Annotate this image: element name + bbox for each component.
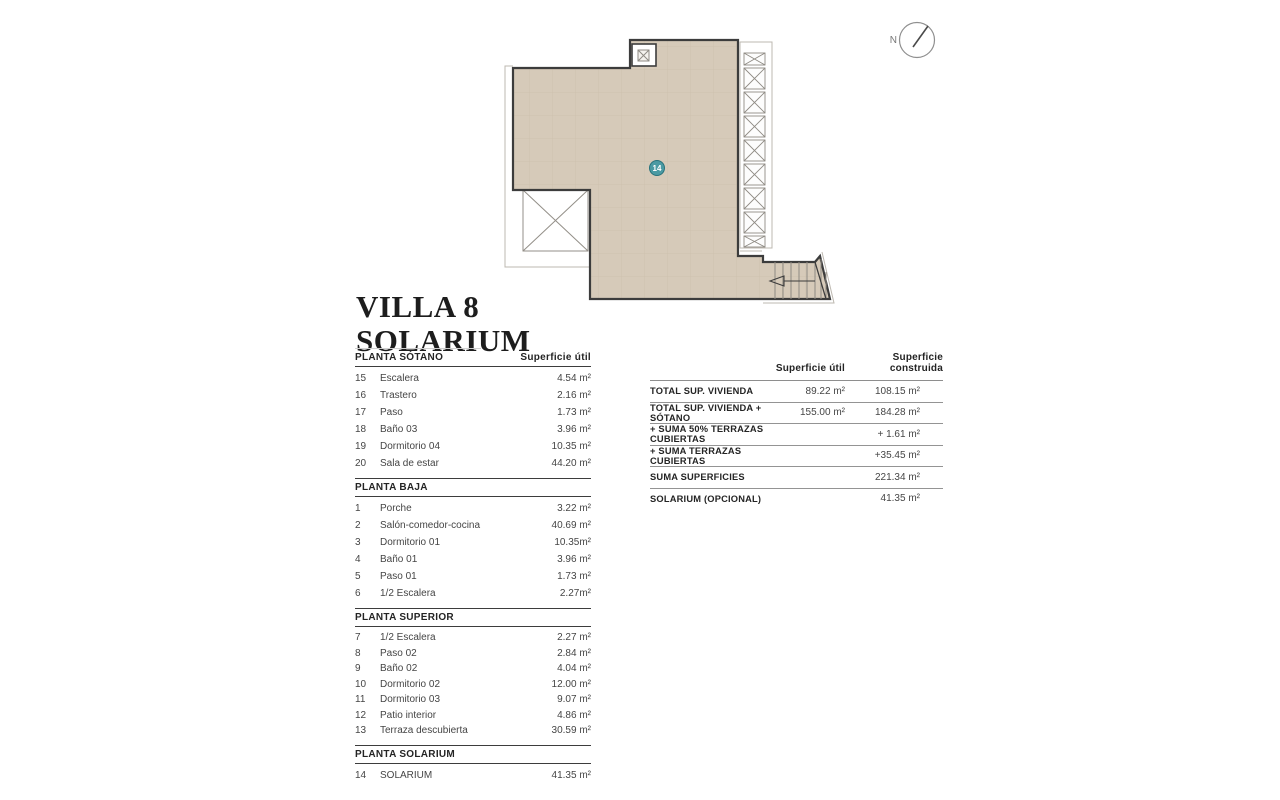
table-row: 19Dormitorio 0410.35 m² [355,438,591,455]
row-number: 9 [355,663,380,674]
row-name: Baño 02 [380,663,557,674]
row-number: 11 [355,694,380,705]
section-planta-solarium: PLANTA SOLARIUM 14SOLARIUM41.35 m² [355,745,591,784]
row-area: 44.20 m² [552,458,591,469]
row-number: 20 [355,458,380,469]
row-area: 41.35 m² [552,770,591,781]
row-area: 10.35m² [554,537,591,548]
table-row: 61/2 Escalera2.27m² [355,585,591,602]
pergola-box [744,236,765,247]
summary-built-value: 221.34 m² [845,472,943,483]
pergola-strip [744,53,765,247]
summary-built-value: + 1.61 m² [845,429,943,440]
row-name: Paso 02 [380,648,557,659]
table-row: 15Escalera4.54 m² [355,370,591,387]
section-planta-superior: PLANTA SUPERIOR 71/2 Escalera2.27 m² 8Pa… [355,608,591,739]
row-number: 1 [355,503,380,514]
table-row: 8Paso 022.84 m² [355,646,591,662]
solarium-outline [513,40,830,299]
table-row: 1Porche3.22 m² [355,500,591,517]
row-number: 5 [355,571,380,582]
row-name: Trastero [380,390,557,401]
row-number: 19 [355,441,380,452]
row-name: Sala de estar [380,458,552,469]
summary-row: TOTAL SUP. VIVIENDA + SÓTANO155.00 m²184… [650,403,943,425]
table-row: 17Paso1.73 m² [355,404,591,421]
summary-built-value: 184.28 m² [845,407,943,418]
pergola-box [744,212,765,233]
roof-drain-icon [638,50,649,61]
row-area: 30.59 m² [552,725,591,736]
row-name: Dormitorio 01 [380,537,554,548]
summary-row-label: + SUMA 50% TERRAZAS CUBIERTAS [650,424,773,444]
summary-row-label: SOLARIUM (OPCIONAL) [650,494,773,504]
table-row: 10Dormitorio 0212.00 m² [355,677,591,693]
row-area: 4.54 m² [557,373,591,384]
room-number-label: 14 [653,164,662,173]
row-area: 1.73 m² [557,407,591,418]
table-row: 4Baño 013.96 m² [355,551,591,568]
table-row: 2Salón-comedor-cocina40.69 m² [355,517,591,534]
row-number: 15 [355,373,380,384]
table-row: 11Dormitorio 039.07 m² [355,692,591,708]
pergola-box [744,92,765,113]
row-area: 1.73 m² [557,571,591,582]
section-title: PLANTA SOLARIUM [355,749,455,760]
row-name: Dormitorio 02 [380,679,552,690]
summary-row: + SUMA 50% TERRAZAS CUBIERTAS+ 1.61 m² [650,424,943,446]
row-area: 3.96 m² [557,554,591,565]
row-area: 3.22 m² [557,503,591,514]
summary-header: Superficie útil Superficie construida [650,350,943,381]
pergola-box [744,53,765,65]
section-title: PLANTA SÓTANO [355,352,443,363]
table-row: 12Patio interior4.86 m² [355,708,591,724]
table-row: 9Baño 024.04 m² [355,661,591,677]
table-row: 16Trastero2.16 m² [355,387,591,404]
floor-plan: 14 N [440,10,960,310]
table-row: 13Terraza descubierta30.59 m² [355,723,591,739]
summary-row: SUMA SUPERFICIES221.34 m² [650,467,943,489]
row-area: 3.96 m² [557,424,591,435]
row-area: 4.04 m² [557,663,591,674]
pergola-box [744,188,765,209]
title-line1: VILLA 8 [356,290,531,324]
row-area: 40.69 m² [552,520,591,531]
row-number: 2 [355,520,380,531]
area-column-header: Superficie útil [520,352,591,363]
row-name: Patio interior [380,710,557,721]
row-number: 6 [355,588,380,599]
row-name: 1/2 Escalera [380,632,557,643]
util-column-header: Superficie útil [773,363,845,374]
summary-util-value: 155.00 m² [773,407,845,418]
row-number: 8 [355,648,380,659]
row-name: Paso [380,407,557,418]
north-label: N [890,35,897,46]
pergola-box [744,116,765,137]
section-planta-baja: PLANTA BAJA 1Porche3.22 m² 2Salón-comedo… [355,478,591,602]
row-name: Dormitorio 04 [380,441,552,452]
summary-util-value: 89.22 m² [773,386,845,397]
summary-row-label: TOTAL SUP. VIVIENDA + SÓTANO [650,403,773,423]
table-row: 14SOLARIUM41.35 m² [355,767,591,784]
row-name: Paso 01 [380,571,557,582]
row-number: 14 [355,770,380,781]
summary-row-label: SUMA SUPERFICIES [650,472,773,482]
row-number: 7 [355,632,380,643]
row-number: 16 [355,390,380,401]
row-name: Baño 03 [380,424,557,435]
built-column-header: Superficie construida [845,352,943,374]
summary-row-label: + SUMA TERRAZAS CUBIERTAS [650,446,773,466]
section-title: PLANTA SUPERIOR [355,612,454,623]
pergola-box [744,140,765,161]
row-area: 2.27 m² [557,632,591,643]
table-row: 3Dormitorio 0110.35m² [355,534,591,551]
row-name: Escalera [380,373,557,384]
row-area: 2.27m² [560,588,591,599]
row-area: 9.07 m² [557,694,591,705]
table-row: 5Paso 011.73 m² [355,568,591,585]
row-name: Terraza descubierta [380,725,552,736]
row-name: Baño 01 [380,554,557,565]
row-area: 4.86 m² [557,710,591,721]
pergola-box [744,164,765,185]
section-planta-sotano: PLANTA SÓTANO Superficie útil 15Escalera… [355,349,591,472]
room-number-badge: 14 [650,161,665,176]
row-name: Dormitorio 03 [380,694,557,705]
table-row: 20Sala de estar44.20 m² [355,455,591,472]
row-number: 13 [355,725,380,736]
row-name: 1/2 Escalera [380,588,560,599]
table-row: 71/2 Escalera2.27 m² [355,630,591,646]
row-number: 18 [355,424,380,435]
row-number: 4 [355,554,380,565]
summary-table: Superficie útil Superficie construida TO… [650,350,943,509]
row-area: 10.35 m² [552,441,591,452]
row-name: SOLARIUM [380,770,552,781]
summary-row: + SUMA TERRAZAS CUBIERTAS+35.45 m² [650,446,943,468]
row-number: 10 [355,679,380,690]
row-number: 12 [355,710,380,721]
row-number: 17 [355,407,380,418]
row-area: 2.84 m² [557,648,591,659]
row-area: 12.00 m² [552,679,591,690]
skylight-square [523,190,588,251]
north-compass-icon: N [890,23,935,58]
areas-table: PLANTA SÓTANO Superficie útil 15Escalera… [355,348,591,784]
row-number: 3 [355,537,380,548]
summary-built-value: 108.15 m² [845,386,943,397]
pergola-box [744,68,765,89]
row-name: Porche [380,503,557,514]
summary-built-value: 41.35 m² [845,493,943,504]
table-row: 18Baño 033.96 m² [355,421,591,438]
summary-built-value: +35.45 m² [845,450,943,461]
row-name: Salón-comedor-cocina [380,520,552,531]
summary-row: SOLARIUM (OPCIONAL)41.35 m² [650,489,943,510]
row-area: 2.16 m² [557,390,591,401]
section-title: PLANTA BAJA [355,482,428,493]
summary-row: TOTAL SUP. VIVIENDA89.22 m²108.15 m² [650,381,943,403]
summary-row-label: TOTAL SUP. VIVIENDA [650,386,773,396]
